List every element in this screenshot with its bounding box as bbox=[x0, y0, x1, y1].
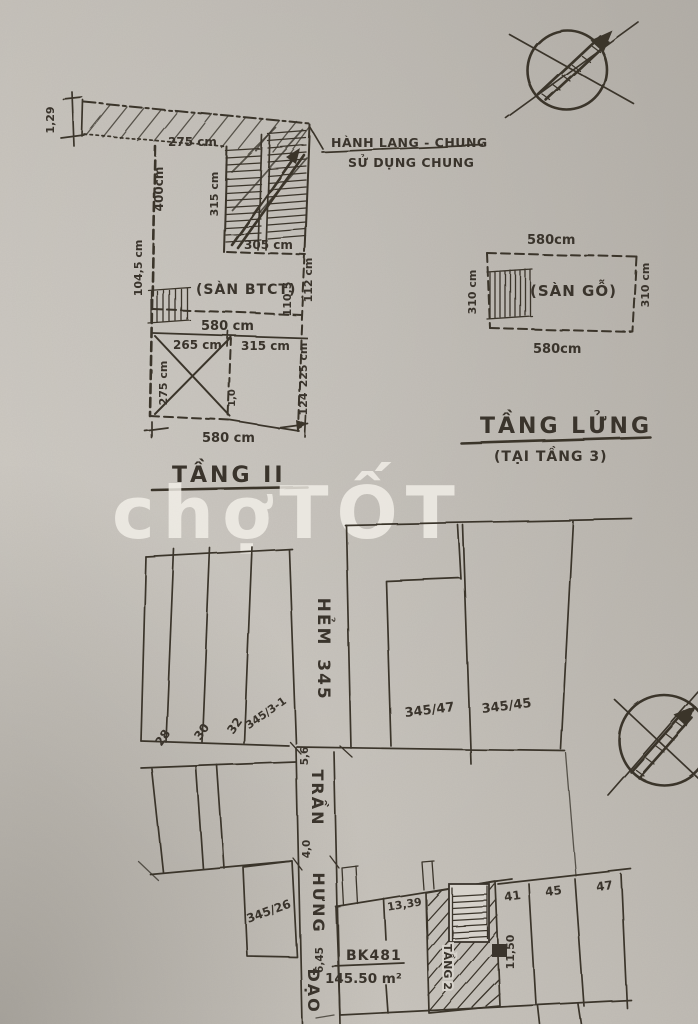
alley-word: HẺM bbox=[313, 598, 336, 647]
scanned-floorplan-photo: 1,29 275 cm HÀNH LANG - CHUNG SỬ DỤNG CH… bbox=[0, 0, 698, 1024]
alley-number: 345 bbox=[313, 659, 333, 701]
floor2-dim-tiny: 1,0 bbox=[227, 389, 238, 407]
floor2-note-line2: SỬ DỤNG CHUNG bbox=[348, 154, 474, 170]
plot-area: 145.50 m² bbox=[325, 971, 402, 987]
floor2-dim-strip-width: 1,29 bbox=[44, 106, 57, 133]
plot-id: BK481 bbox=[346, 948, 402, 964]
floor2-dim-mid-width: 580 cm bbox=[201, 319, 254, 334]
floor2-dim-strip-left: 275 cm bbox=[168, 135, 217, 149]
chotot-watermark: chợTỐT bbox=[112, 462, 463, 555]
floor2-dim-stair-bottom: 305 cm bbox=[244, 238, 293, 252]
mezzanine-room-label: (SÀN GỖ) bbox=[530, 279, 617, 300]
floor2-dim-stair-side: 315 cm bbox=[208, 172, 221, 217]
parcel-41-label: 41 bbox=[503, 888, 521, 904]
floor2-dim-low-right: 315 cm bbox=[241, 339, 290, 353]
floor2-dim-low-left: 265 cm bbox=[173, 338, 222, 352]
plot-floor-note: TẦNG 2 bbox=[441, 944, 455, 990]
floor2-dim-right-mid: 225 cm bbox=[297, 343, 310, 388]
street-word2: HƯNG bbox=[309, 872, 328, 933]
floor2-dim-cross: 275 cm bbox=[157, 361, 170, 406]
mezzanine-dim-top: 580cm bbox=[527, 233, 575, 248]
floor2-dim-bottom: 580 cm bbox=[202, 431, 255, 446]
street-word3: ĐẠO bbox=[304, 968, 323, 1013]
floor2-dim-right-low: 124 bbox=[297, 392, 310, 415]
mezzanine-dim-bottom: 580cm bbox=[533, 342, 581, 357]
parcel-47-label: 47 bbox=[595, 878, 613, 894]
mezzanine-dim-right: 310 cm bbox=[639, 263, 652, 308]
plot-dim-right: 11,50 bbox=[504, 934, 517, 969]
floor2-dim-right-b: 112 cm bbox=[302, 258, 315, 303]
floor2-note-line1: HÀNH LANG - CHUNG bbox=[331, 135, 488, 150]
street-word1: TRẦN bbox=[308, 769, 329, 826]
dim-alley-lower: 4,0 bbox=[301, 840, 313, 859]
floor2-dim-right-a: 110,5 bbox=[281, 282, 294, 317]
parcel-45-label: 45 bbox=[544, 883, 562, 899]
floor2-dim-left-upper: 400cm bbox=[152, 167, 166, 212]
mezzanine-dim-left: 310 cm bbox=[466, 270, 479, 315]
floorplan-drawing: 1,29 275 cm HÀNH LANG - CHUNG SỬ DỤNG CH… bbox=[0, 0, 698, 1024]
dim-alley-upper: 5,6 bbox=[299, 747, 311, 766]
mezzanine-title: TẦNG LỬNG bbox=[480, 410, 652, 439]
mezzanine-subtitle: (TẠI TẦNG 3) bbox=[494, 446, 607, 465]
plot-dim-front: 6,45 bbox=[314, 947, 326, 973]
floor2-dim-left-lower: 104,5 cm bbox=[132, 240, 145, 297]
